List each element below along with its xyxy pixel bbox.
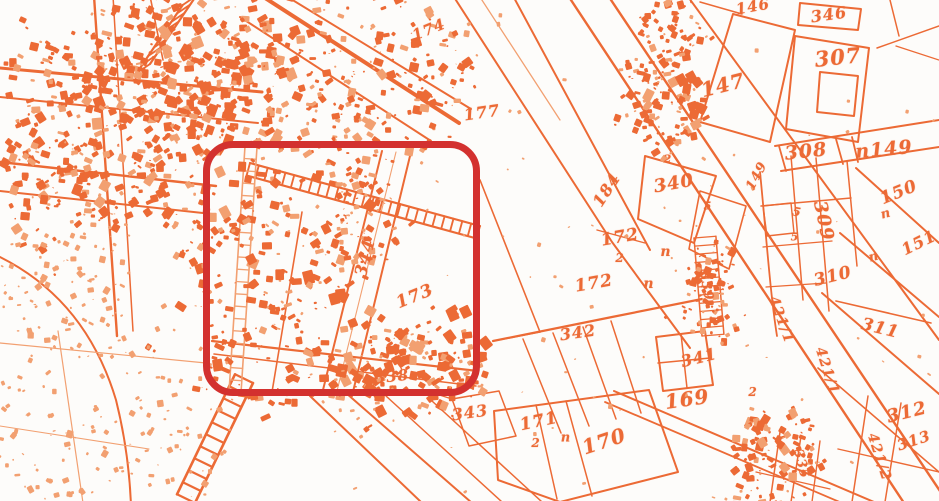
- cadastral-map: 146346147307308n14914930955150n151n31031…: [0, 0, 939, 501]
- highlight-rectangle: [203, 141, 480, 396]
